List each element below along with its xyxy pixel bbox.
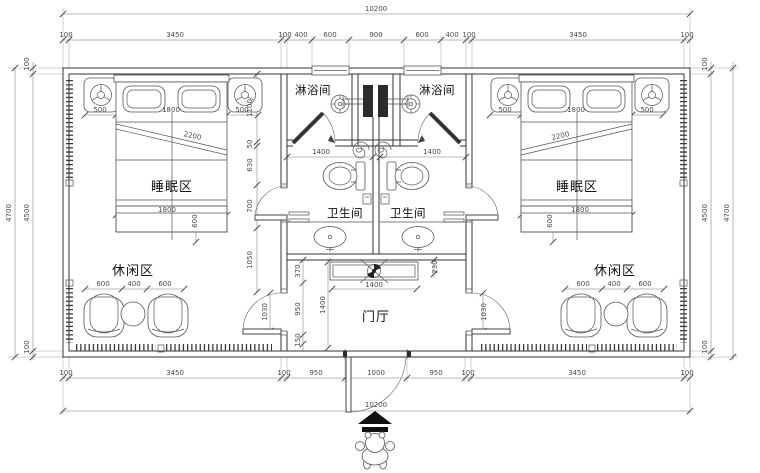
floor-drain-icon: [375, 142, 391, 158]
dim-label: 600: [158, 280, 171, 288]
chair-icon: [561, 294, 601, 337]
room-label-shower-left: 淋浴间: [295, 83, 331, 97]
dim-label: 500: [498, 106, 511, 114]
room-label-shower-right: 淋浴间: [419, 83, 455, 97]
dim-label: 100: [59, 31, 72, 39]
dim-label: 950: [309, 369, 322, 377]
room-label-leisure-left: 休闲区: [112, 264, 154, 279]
person-figure: [356, 432, 395, 469]
side-table-icon: [604, 302, 628, 326]
chair-icon: [627, 294, 667, 337]
dim-label: 1030: [480, 303, 488, 321]
dim-label: 600: [323, 31, 336, 39]
toilet-icon: [387, 162, 429, 190]
room-label-sleep-right: 睡眠区: [556, 180, 598, 195]
dim-label: 4700: [5, 204, 13, 222]
room-label-wc-left: 卫生间: [327, 206, 363, 220]
door-swing-right-bath: [444, 186, 498, 222]
window-icon: [312, 66, 349, 75]
dim-label: 100: [461, 369, 474, 377]
floor-plan-page: 10200 100 3450 100 400 600 900 600 400 1…: [0, 0, 760, 473]
dim-label: 600: [576, 280, 589, 288]
left-room: [84, 75, 309, 337]
room-label-sleep-left: 睡眠区: [151, 180, 193, 195]
dim-label: 950: [294, 302, 302, 315]
dim-label: 600: [96, 280, 109, 288]
dim-label: 900: [369, 31, 382, 39]
dim-label: 700: [246, 199, 254, 212]
hall-cabinet: [330, 259, 418, 283]
bed-right: [519, 75, 634, 240]
dim-label: 100: [23, 340, 31, 353]
plumbing-chase-left: [363, 85, 373, 117]
dim-label: 100: [701, 340, 709, 353]
dim-label: 1030: [261, 303, 269, 321]
dim-label: 10200: [365, 5, 387, 13]
dim-label: 3450: [568, 369, 586, 377]
dim-label: 3450: [569, 31, 587, 39]
dim-label: 1400: [319, 296, 327, 314]
dim-label: 4700: [723, 204, 731, 222]
dim-label: 370: [294, 264, 302, 277]
dim-label: 100: [680, 369, 693, 377]
dim-label: 100: [701, 57, 709, 70]
dim-label: 100: [59, 369, 72, 377]
sink-icon: [402, 227, 434, 253]
side-table-icon: [121, 302, 145, 326]
dim-label: 400: [445, 31, 458, 39]
dim-label: 100: [278, 31, 291, 39]
dim-label: 100: [462, 31, 475, 39]
dim-label: 100: [680, 31, 693, 39]
shower-door-right: [418, 113, 460, 143]
bed-left: [114, 75, 229, 240]
room-label-hall: 门厅: [362, 310, 390, 325]
dim-label: 1800: [162, 106, 180, 114]
shower-head-icon: [402, 95, 420, 113]
floor-drain-icon: [353, 142, 369, 158]
dim-label: 500: [640, 106, 653, 114]
dim-label: 100: [23, 57, 31, 70]
dim-label: 600: [191, 214, 199, 227]
dim-label: 4500: [23, 204, 31, 222]
dim-label: 500: [93, 106, 106, 114]
dim-label: 10200: [365, 401, 387, 409]
dim-label: 3450: [166, 369, 184, 377]
sink-icon: [314, 227, 346, 253]
chair-icon: [84, 294, 124, 337]
dim-label: 1400: [365, 281, 383, 289]
shower-head-icon: [331, 95, 349, 113]
room-label-leisure-right: 休闲区: [594, 264, 636, 279]
right-room: [444, 75, 669, 337]
dim-label: 600: [546, 214, 554, 227]
dim-label: 600: [415, 31, 428, 39]
room-label-wc-right: 卫生间: [390, 206, 426, 220]
window-icon: [404, 66, 441, 75]
dim-label: 1000: [367, 369, 385, 377]
dim-label: 1100: [246, 99, 254, 117]
dim-label: 1800: [158, 206, 176, 214]
entry-arrow-icon: [358, 411, 392, 432]
dim-label: 600: [638, 280, 651, 288]
dim-label: 1050: [246, 251, 254, 269]
toilet-icon: [323, 162, 365, 190]
dim-label: 3450: [166, 31, 184, 39]
dim-label: 630: [246, 158, 254, 171]
dim-label: 950: [429, 369, 442, 377]
plumbing-chase-right: [378, 85, 388, 117]
dim-label: 1400: [423, 148, 441, 156]
chair-icon: [148, 294, 188, 337]
dim-label: 400: [607, 280, 620, 288]
floor-plan-canvas: 10200 100 3450 100 400 600 900 600 400 1…: [0, 0, 760, 473]
dim-label: 1800: [567, 106, 585, 114]
door-swing-right-room: [472, 293, 510, 334]
dim-label: 100: [277, 369, 290, 377]
dim-label: 230: [431, 260, 439, 273]
shower-door-left: [293, 113, 335, 143]
dim-label: 4500: [701, 204, 709, 222]
dim-label: 150: [294, 333, 302, 346]
door-swing-left-bath: [255, 186, 309, 222]
dim-label: 400: [294, 31, 307, 39]
dim-label: 50: [246, 140, 254, 149]
dim-label: 400: [127, 280, 140, 288]
dim-label: 1400: [312, 148, 330, 156]
dim-label: 1800: [571, 206, 589, 214]
